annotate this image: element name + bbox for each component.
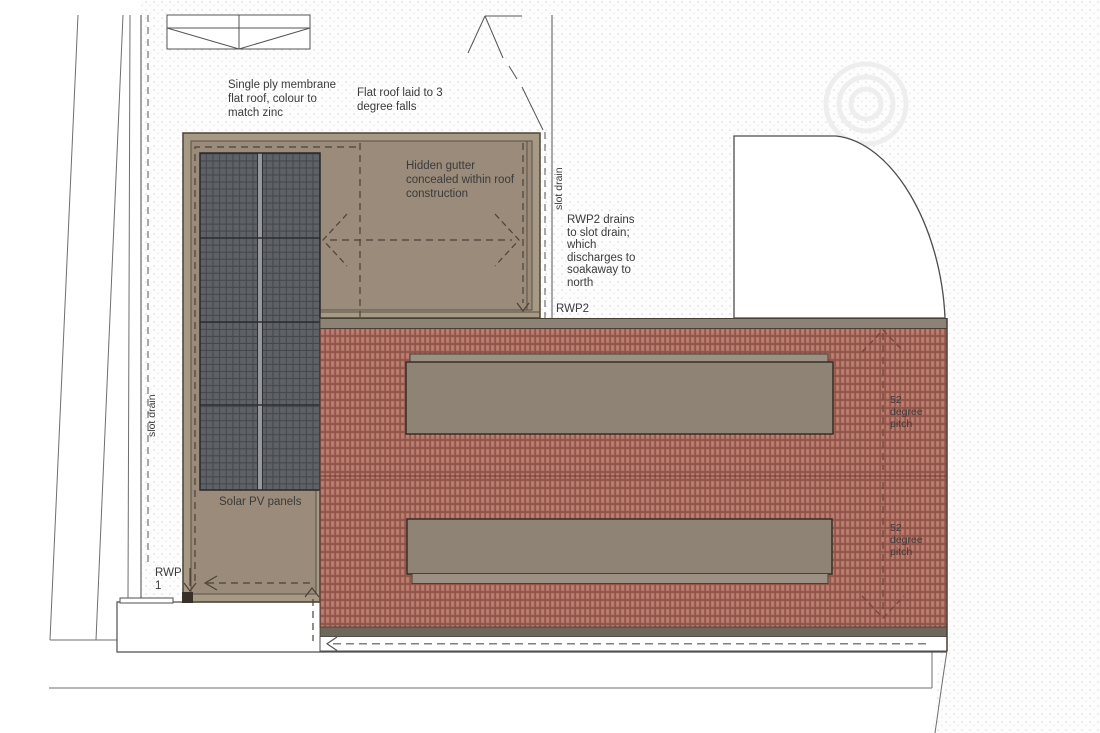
slot-drain-label-right: slot drain bbox=[553, 167, 565, 210]
note-hidden-gutter: Hidden gutter concealed within roof cons… bbox=[406, 159, 531, 201]
rooflight-symbol bbox=[167, 15, 310, 49]
roof-plan-canvas: Single ply membrane flat roof, colour to… bbox=[0, 0, 1100, 733]
site-plan-linework bbox=[0, 0, 1100, 733]
pitch-label-lower: 52 degree pitch bbox=[890, 522, 935, 558]
rwp1-marker bbox=[182, 592, 193, 603]
note-falls: Flat roof laid to 3 degree falls bbox=[357, 86, 467, 114]
slot-drain-label-left: slot drain bbox=[146, 394, 158, 437]
rwp1-label: RWP 1 bbox=[155, 567, 182, 592]
note-rwp2: RWP2 drains to slot drain; which dischar… bbox=[567, 214, 647, 289]
note-membrane: Single ply membrane flat roof, colour to… bbox=[228, 78, 348, 120]
solar-pv-panels bbox=[200, 153, 320, 490]
rwp2-label: RWP2 bbox=[556, 302, 589, 316]
solar-pv-label: Solar PV panels bbox=[219, 495, 301, 509]
upper-rooflight bbox=[406, 362, 833, 434]
eave-band bbox=[320, 627, 947, 637]
ridge-band bbox=[320, 319, 947, 329]
pitch-label-upper: 52 degree pitch bbox=[890, 394, 935, 430]
bottom-road bbox=[0, 652, 940, 733]
lower-rooflight bbox=[407, 519, 832, 574]
